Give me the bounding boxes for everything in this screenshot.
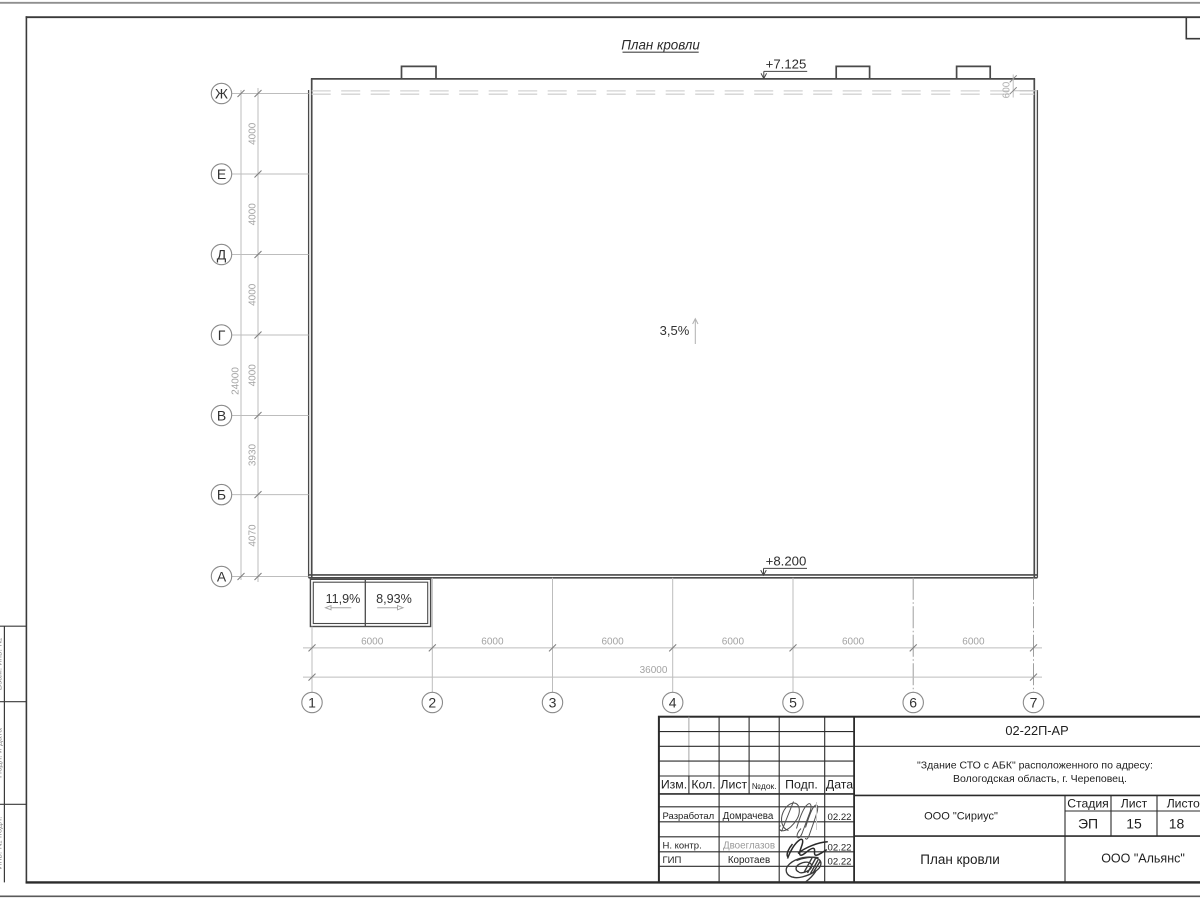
svg-text:+7.125: +7.125 (766, 56, 807, 71)
svg-text:Кол.: Кол. (691, 778, 715, 792)
svg-text:24000: 24000 (231, 367, 242, 395)
svg-text:4000: 4000 (248, 283, 259, 306)
svg-text:Взам. инв. №: Взам. инв. № (0, 638, 4, 691)
svg-text:Изм.: Изм. (661, 778, 687, 792)
svg-text:6000: 6000 (481, 636, 504, 647)
svg-text:2: 2 (428, 694, 436, 710)
svg-text:02-22П-АР: 02-22П-АР (1005, 723, 1068, 738)
svg-text:5: 5 (789, 694, 797, 710)
svg-text:ООО "Сириус": ООО "Сириус" (924, 811, 998, 823)
svg-text:6000: 6000 (962, 636, 985, 647)
svg-text:Лист: Лист (720, 778, 747, 792)
svg-text:Г: Г (218, 327, 226, 343)
svg-text:6000: 6000 (361, 636, 384, 647)
svg-text:4: 4 (669, 694, 677, 710)
svg-text:6: 6 (909, 694, 917, 710)
svg-text:02.22: 02.22 (827, 843, 851, 854)
svg-text:Инв. № подл.: Инв. № подл. (0, 817, 4, 870)
svg-text:36000: 36000 (640, 665, 668, 676)
svg-text:Ж: Ж (215, 85, 228, 101)
svg-text:02.22: 02.22 (827, 812, 851, 823)
svg-text:Подп. и дата: Подп. и дата (0, 728, 4, 778)
svg-text:Домрачева: Домрачева (723, 811, 774, 822)
svg-text:3: 3 (549, 694, 557, 710)
svg-text:Лист: Лист (1121, 797, 1148, 811)
svg-text:18: 18 (1169, 816, 1185, 832)
svg-text:600: 600 (1002, 81, 1013, 98)
svg-text:Разработал: Разработал (663, 811, 715, 822)
svg-text:План кровли: План кровли (621, 37, 700, 52)
svg-text:3930: 3930 (248, 443, 259, 466)
svg-text:Коротаев: Коротаев (728, 855, 770, 866)
svg-text:11,9%: 11,9% (326, 592, 361, 606)
svg-text:15: 15 (1126, 816, 1142, 832)
svg-text:Двоеглазов: Двоеглазов (723, 841, 775, 852)
svg-text:ЭП: ЭП (1078, 816, 1098, 832)
svg-text:"Здание СТО с АБК" расположенн: "Здание СТО с АБК" расположенного по адр… (917, 760, 1153, 772)
svg-text:6000: 6000 (842, 636, 865, 647)
svg-text:4000: 4000 (248, 364, 259, 387)
svg-text:В: В (217, 407, 226, 423)
svg-text:Е: Е (217, 166, 226, 182)
svg-text:Д: Д (217, 246, 227, 262)
svg-text:План кровли: План кровли (920, 852, 1000, 867)
svg-text:ГИП: ГИП (663, 855, 682, 866)
svg-text:6000: 6000 (601, 636, 624, 647)
svg-text:Вологодская область, г. Черепо: Вологодская область, г. Череповец. (953, 773, 1127, 785)
svg-text:7: 7 (1030, 694, 1038, 710)
svg-text:Б: Б (217, 487, 226, 503)
svg-text:Стадия: Стадия (1067, 797, 1109, 811)
svg-text:Дата: Дата (826, 778, 853, 792)
svg-text:Н. контр.: Н. контр. (663, 841, 702, 852)
svg-text:4000: 4000 (248, 203, 259, 226)
svg-text:Листов: Листов (1167, 797, 1200, 811)
svg-text:ООО "Альянс": ООО "Альянс" (1101, 851, 1185, 865)
svg-text:02.22: 02.22 (827, 856, 851, 867)
svg-text:4000: 4000 (248, 122, 259, 145)
svg-text:№док.: №док. (752, 781, 777, 791)
svg-text:8,93%: 8,93% (376, 592, 412, 606)
svg-text:+8.200: +8.200 (766, 554, 807, 569)
svg-text:1: 1 (308, 694, 316, 710)
svg-text:Подп.: Подп. (785, 778, 818, 792)
svg-text:А: А (217, 568, 227, 584)
svg-text:3,5%: 3,5% (660, 323, 690, 338)
svg-text:6000: 6000 (722, 636, 745, 647)
svg-text:4070: 4070 (248, 524, 259, 547)
